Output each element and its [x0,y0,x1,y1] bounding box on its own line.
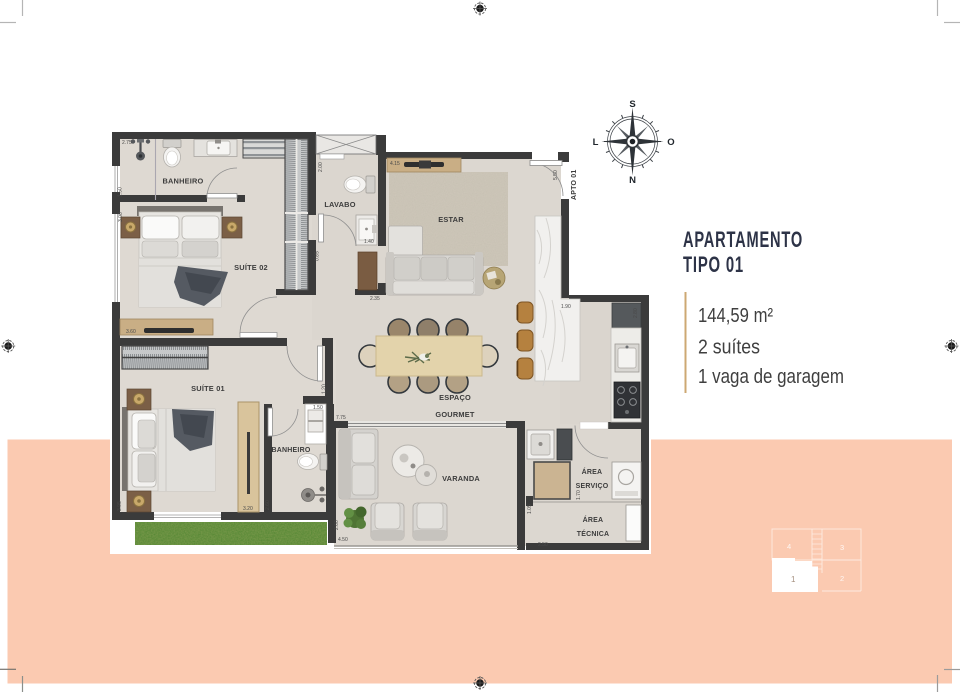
svg-text:2.35: 2.35 [370,296,380,302]
svg-text:1.05: 1.05 [527,504,533,514]
svg-text:2.50: 2.50 [538,542,548,548]
svg-text:BANHEIRO: BANHEIRO [272,447,311,454]
svg-text:SUÍTE 01: SUÍTE 01 [191,384,225,393]
svg-text:1.20: 1.20 [322,384,328,394]
svg-text:2.60: 2.60 [334,520,340,530]
svg-text:0.85: 0.85 [315,251,321,261]
svg-text:APTO 01: APTO 01 [571,170,578,200]
svg-text:1.50: 1.50 [118,187,124,197]
svg-text:APARTAMENTO: APARTAMENTO [683,227,803,252]
svg-text:SUÍTE 02: SUÍTE 02 [234,263,268,272]
svg-text:4: 4 [787,542,791,551]
svg-text:TÉCNICA: TÉCNICA [577,529,610,538]
svg-text:1.40: 1.40 [364,239,374,245]
svg-text:O: O [667,137,674,148]
svg-text:ÁREA: ÁREA [583,515,604,524]
svg-text:ÁREA: ÁREA [582,467,603,476]
svg-text:1.70: 1.70 [576,490,582,500]
svg-text:GOURMET: GOURMET [435,410,474,419]
svg-text:SERVIÇO: SERVIÇO [576,483,609,490]
svg-text:VARANDA: VARANDA [442,474,480,483]
svg-text:TIPO 01: TIPO 01 [683,252,744,277]
svg-text:7.75: 7.75 [336,415,346,421]
svg-text:1: 1 [791,575,796,584]
svg-text:4.15: 4.15 [390,161,400,167]
svg-text:3: 3 [840,543,844,552]
svg-text:2.00: 2.00 [318,162,324,172]
svg-text:3.20: 3.20 [243,506,253,512]
svg-text:2.75: 2.75 [122,140,132,146]
svg-text:N: N [629,175,636,186]
svg-text:LAVABO: LAVABO [324,200,355,209]
svg-text:4.50: 4.50 [338,537,348,543]
svg-text:3.60: 3.60 [126,329,136,335]
svg-text:2.60: 2.60 [265,500,271,510]
svg-text:2: 2 [840,574,844,583]
svg-text:ESTAR: ESTAR [438,215,464,224]
svg-text:1 vaga de garagem: 1 vaga de garagem [698,366,844,388]
svg-text:1.50: 1.50 [313,405,323,411]
svg-text:144,59 m²: 144,59 m² [698,305,773,327]
svg-text:1.90: 1.90 [561,304,571,310]
svg-text:L: L [593,137,599,148]
svg-text:3.95: 3.95 [117,501,123,511]
svg-text:5.50: 5.50 [553,170,559,180]
svg-text:BANHEIRO: BANHEIRO [162,177,203,186]
svg-text:S: S [629,99,635,110]
svg-text:3.00: 3.00 [118,212,124,222]
svg-text:2 suítes: 2 suítes [698,337,760,359]
svg-text:2.80: 2.80 [633,308,639,318]
svg-text:ESPAÇO: ESPAÇO [439,393,471,402]
